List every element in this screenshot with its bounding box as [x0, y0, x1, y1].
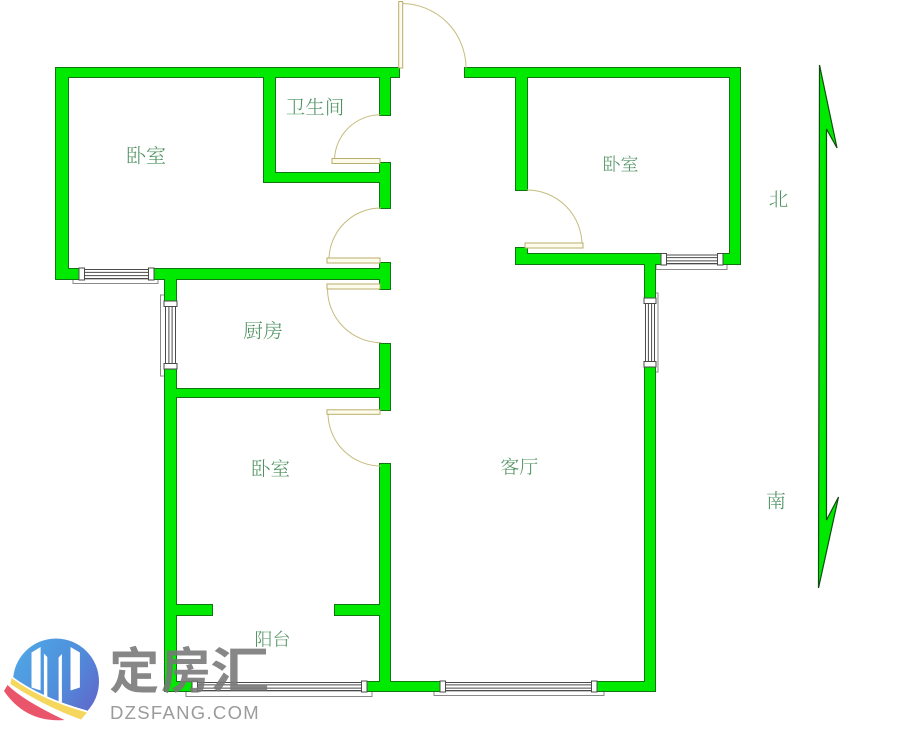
svg-text:DZSFANG.COM: DZSFANG.COM [110, 702, 260, 723]
